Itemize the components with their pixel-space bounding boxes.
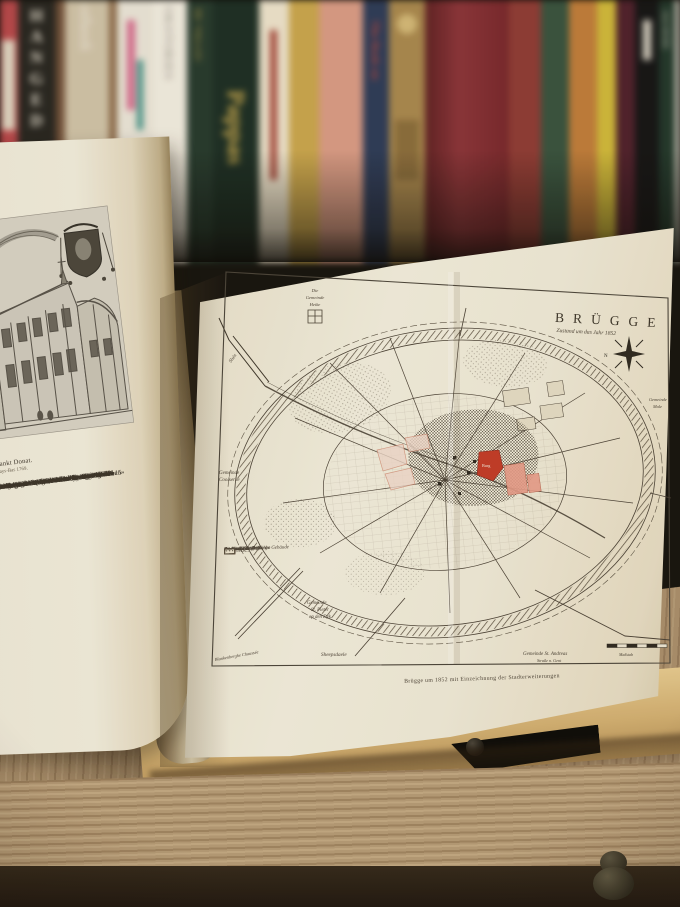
compass-rose: N (604, 336, 645, 372)
map-title: BRÜGGE (555, 310, 665, 331)
svg-text:Sluis: Sluis (229, 353, 239, 364)
spine-title: otheek (75, 4, 96, 51)
spine-title: ALE BOEK (661, 10, 670, 49)
scale-label: Maßstab (618, 652, 633, 657)
svg-text:Gemeinde: Gemeinde (306, 295, 325, 300)
spine-color-mark (643, 20, 651, 60)
svg-text:Sheepsdaele: Sheepsdaele (321, 652, 347, 658)
dresser-lower-dark (0, 866, 680, 907)
svg-text:Gemeinde: Gemeinde (307, 601, 327, 606)
svg-text:Straße n. Gent: Straße n. Gent (537, 658, 562, 663)
map-subtitle: Zustand um das Jahr 1852 (556, 328, 616, 337)
svg-text:Die: Die (311, 288, 319, 293)
svg-text:Male: Male (652, 404, 662, 409)
drawer-knob-base (593, 867, 634, 900)
spine-color-mark (137, 60, 143, 130)
svg-text:St. Pieter: St. Pieter (311, 608, 329, 613)
spine-title: OKSTORIES (161, 6, 176, 81)
svg-text:Blankenberghe Chaussée: Blankenberghe Chaussée (214, 649, 259, 662)
bruges-map: Burg BRÜGGE Zustand um das Jahr 1852 N (205, 268, 671, 670)
svg-text:Heike: Heike (309, 302, 321, 307)
svg-text:Gemeinde: Gemeinde (219, 471, 240, 476)
book-spine-label-sticker (2, 40, 15, 130)
spine-ornament (397, 14, 417, 34)
drawer-knob[interactable] (593, 851, 635, 901)
spine-title: The Book on (369, 20, 381, 80)
burg-label: Burg (482, 463, 491, 468)
spine-title: DE VALLEI (193, 8, 203, 62)
compass-north-label: N (604, 354, 608, 359)
parish-stamp: Die Gemeinde Heike (306, 288, 325, 323)
engraving-caption: Sankt Donat. (0, 457, 33, 468)
svg-text:Gemeinde St. Andreas: Gemeinde St. Andreas (523, 652, 567, 657)
engraving-caption-sub: Pays-Bas 1769. (0, 467, 28, 476)
svg-text:Gemeinde: Gemeinde (649, 397, 667, 402)
svg-text:op den Dyk: op den Dyk (309, 615, 332, 620)
fold-crease (448, 272, 460, 664)
church-engraving (0, 197, 141, 455)
scale-bar: Maßstab (607, 644, 667, 657)
svg-text:Coolkerke: Coolkerke (219, 478, 240, 483)
photo-canvas: HANGED HIST otheek OKSTORIES DE VALLEI P… (0, 0, 680, 907)
spine-color-mark (127, 20, 135, 110)
